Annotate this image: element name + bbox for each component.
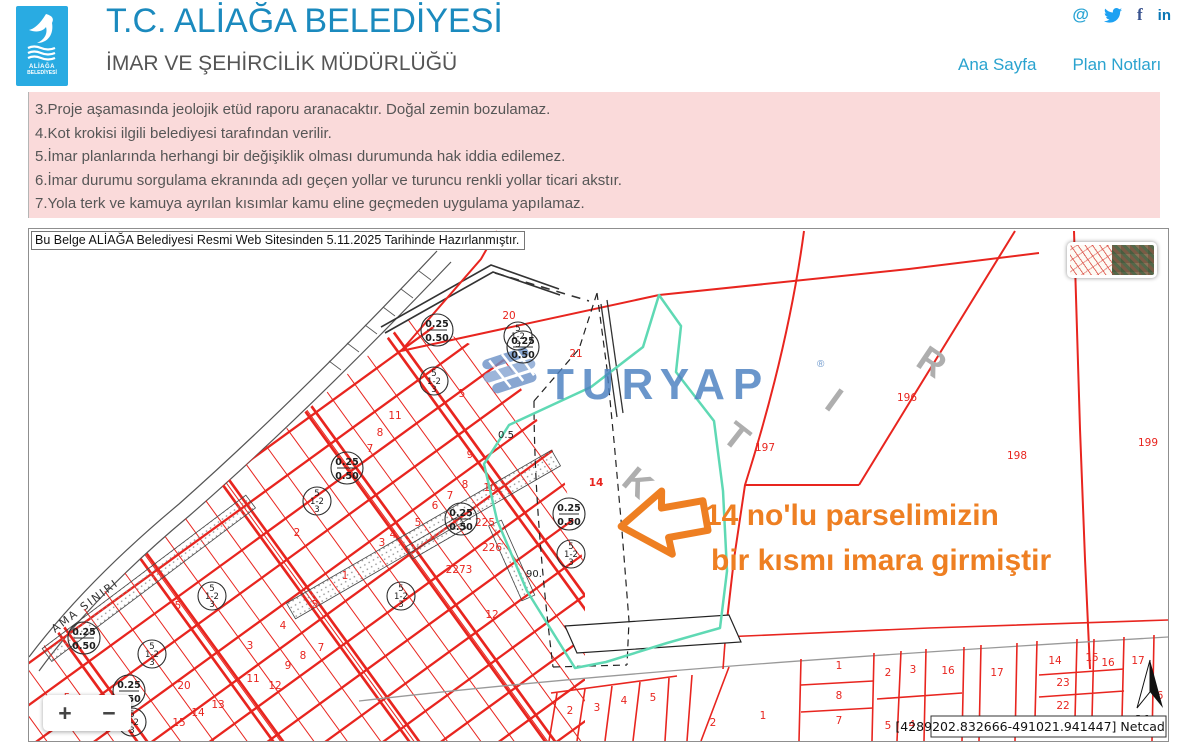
map-small-label: 0.5 bbox=[498, 430, 514, 441]
parcel-number: 8 bbox=[377, 427, 384, 439]
note-line: 5.İmar planlarında herhangi bir değişikl… bbox=[35, 145, 1150, 169]
logo-text-line2: BELEDİYESİ bbox=[27, 71, 57, 77]
annotation-line2: bir kısmı imara girmiştir bbox=[711, 544, 1051, 577]
svg-text:0.25: 0.25 bbox=[449, 508, 472, 519]
svg-text:0.25: 0.25 bbox=[117, 680, 140, 691]
zoom-out-button[interactable]: − bbox=[102, 695, 115, 731]
parcel-number: 11 bbox=[246, 673, 259, 685]
svg-text:3: 3 bbox=[149, 658, 154, 668]
parcel-number: 6 bbox=[432, 500, 439, 512]
svg-text:0.50: 0.50 bbox=[335, 471, 359, 482]
svg-text:0.50: 0.50 bbox=[72, 641, 96, 652]
coordinate-text: [4289202.832666-491021.941447] Netcad 20… bbox=[895, 719, 1168, 734]
parcel-number: 16 bbox=[941, 665, 955, 677]
parcel-number: 2273 bbox=[446, 564, 473, 576]
parcel-number: 17 bbox=[990, 667, 1003, 679]
page: ALİAĞA BELEDİYESİ T.C. ALİAĞA BELEDİYESİ… bbox=[0, 0, 1187, 747]
parcel-number: 1 bbox=[760, 710, 767, 722]
parcel-number: 3 bbox=[910, 664, 917, 676]
svg-text:0.50: 0.50 bbox=[425, 333, 449, 344]
parcel-number: 22 bbox=[1056, 700, 1069, 712]
svg-text:0.50: 0.50 bbox=[449, 522, 473, 533]
watermark-reg: ® bbox=[817, 359, 825, 370]
svg-text:3: 3 bbox=[314, 505, 319, 515]
page-subtitle: İMAR VE ŞEHİRCİLİK MÜDÜRLÜĞÜ bbox=[106, 52, 457, 76]
parcel-number: 4 bbox=[390, 529, 397, 541]
satellite-layer-thumb[interactable] bbox=[1112, 245, 1154, 275]
twitter-icon[interactable] bbox=[1104, 8, 1122, 23]
parcel-number: 20 bbox=[177, 680, 190, 692]
svg-text:0.50: 0.50 bbox=[557, 517, 581, 528]
parcel-number: 9 bbox=[285, 660, 292, 672]
parcel-number: 21 bbox=[569, 348, 582, 360]
parcel-number: 7 bbox=[836, 715, 843, 727]
parcel-number: 5 bbox=[650, 692, 657, 704]
parcel-number: 225 bbox=[475, 517, 495, 529]
parcel-number: 12 bbox=[485, 609, 498, 621]
parcel-number: 1 bbox=[342, 570, 349, 582]
note-line: 4.Kot krokisi ilgili belediyesi tarafınd… bbox=[35, 122, 1150, 146]
parcel-number: 5 bbox=[415, 517, 422, 529]
linkedin-icon[interactable]: in bbox=[1158, 7, 1171, 24]
layer-switcher[interactable] bbox=[1067, 242, 1157, 278]
svg-text:3: 3 bbox=[398, 600, 403, 610]
parcel-number: 7 bbox=[447, 490, 454, 502]
parcel-number: 226 bbox=[482, 542, 502, 554]
facebook-icon[interactable]: f bbox=[1137, 5, 1143, 25]
parcel-number: 11 bbox=[388, 410, 401, 422]
social-links: @ f in bbox=[1072, 5, 1171, 25]
parcel-number: 13 bbox=[211, 699, 224, 711]
parcel-number: 5 bbox=[885, 720, 892, 732]
parcel-number: 9 bbox=[467, 449, 474, 461]
parcel-number: 5 bbox=[312, 599, 319, 611]
parcel-number: 3 bbox=[247, 640, 254, 652]
note-line: 7.Yola terk ve kamuya ayrılan kısımlar k… bbox=[35, 192, 1150, 216]
nav-item-plan-notlari[interactable]: Plan Notları bbox=[1072, 55, 1161, 75]
main-nav: Ana Sayfa Plan Notları Y bbox=[958, 55, 1187, 75]
dove-icon bbox=[16, 6, 68, 64]
parcel-number: 5 bbox=[175, 600, 182, 612]
municipality-logo: ALİAĞA BELEDİYESİ bbox=[16, 6, 68, 86]
parcel-number: 14 bbox=[589, 477, 604, 489]
parcel-number: 16 bbox=[1101, 657, 1115, 669]
parcel-number: 198 bbox=[1007, 450, 1027, 462]
parcel-number: 8 bbox=[836, 690, 843, 702]
note-line: 3.Proje aşamasında jeolojik etüd raporu … bbox=[35, 98, 1150, 122]
parcel-number: 8 bbox=[300, 650, 307, 662]
map-layer-thumb[interactable] bbox=[1070, 245, 1112, 275]
parcel-number: 4 bbox=[280, 620, 287, 632]
parcel-number: 2 bbox=[885, 667, 892, 679]
parcel-number: 14 bbox=[191, 707, 205, 719]
annotation-line1: 14 no'lu parselimizin bbox=[705, 499, 999, 532]
map-small-label: 90. bbox=[526, 569, 542, 580]
parcel-number: 8 bbox=[462, 479, 469, 491]
parcel-number: 196 bbox=[897, 392, 917, 404]
parcel-number: 7 bbox=[367, 443, 374, 455]
svg-text:0.25: 0.25 bbox=[72, 627, 95, 638]
parcel-number: 20 bbox=[502, 310, 515, 322]
parcel-number: 3 bbox=[379, 537, 386, 549]
parcel-number: 3 bbox=[594, 702, 601, 714]
svg-text:0.25: 0.25 bbox=[425, 319, 448, 330]
parcel-number: 1 bbox=[836, 660, 843, 672]
zoom-control: + − bbox=[43, 695, 131, 731]
nav-item-ana-sayfa[interactable]: Ana Sayfa bbox=[958, 55, 1036, 75]
map-canvas[interactable]: AMA SINIRI bbox=[29, 229, 1168, 741]
svg-text:3: 3 bbox=[568, 558, 573, 568]
svg-text:3: 3 bbox=[515, 340, 520, 350]
parcel-number: 7 bbox=[318, 642, 325, 654]
parcel-number: 15 bbox=[1085, 652, 1098, 664]
email-icon[interactable]: @ bbox=[1072, 5, 1089, 25]
parcel-number: 197 bbox=[755, 442, 775, 454]
parcel-number: 2 bbox=[710, 717, 717, 729]
svg-text:0.50: 0.50 bbox=[511, 350, 535, 361]
parcel-number: 2 bbox=[294, 527, 301, 539]
document-stamp: Bu Belge ALİAĞA Belediyesi Resmi Web Sit… bbox=[31, 231, 525, 250]
parcel-number: 199 bbox=[1138, 437, 1158, 449]
parcel-number: 12 bbox=[268, 680, 281, 692]
svg-text:0.25: 0.25 bbox=[557, 503, 580, 514]
parcel-number: 4 bbox=[621, 695, 628, 707]
parcel-number: 2 bbox=[567, 705, 574, 717]
svg-text:3: 3 bbox=[209, 600, 214, 610]
note-line: 6.İmar durumu sorgulama ekranında adı ge… bbox=[35, 169, 1150, 193]
parcel-number: 23 bbox=[1056, 677, 1069, 689]
parcel-number: 10 bbox=[483, 482, 496, 494]
zoom-in-button[interactable]: + bbox=[58, 695, 71, 731]
parcel-number: 15 bbox=[172, 717, 185, 729]
coordinate-readout: [4289202.832666-491021.941447] Netcad 20… bbox=[895, 716, 1168, 737]
watermark-text: TURYAP bbox=[547, 360, 770, 409]
plan-notes-box: 3.Proje aşamasında jeolojik etüd raporu … bbox=[28, 92, 1160, 218]
page-title: T.C. ALİAĞA BELEDİYESİ bbox=[106, 2, 503, 41]
parcel-number: 17 bbox=[1131, 655, 1144, 667]
parcel-number: 5 bbox=[459, 388, 466, 400]
svg-text:0.25: 0.25 bbox=[335, 457, 358, 468]
parcel-number: 14 bbox=[1048, 655, 1062, 667]
svg-text:3: 3 bbox=[431, 385, 436, 395]
zoning-map[interactable]: AMA SINIRI bbox=[28, 228, 1169, 742]
